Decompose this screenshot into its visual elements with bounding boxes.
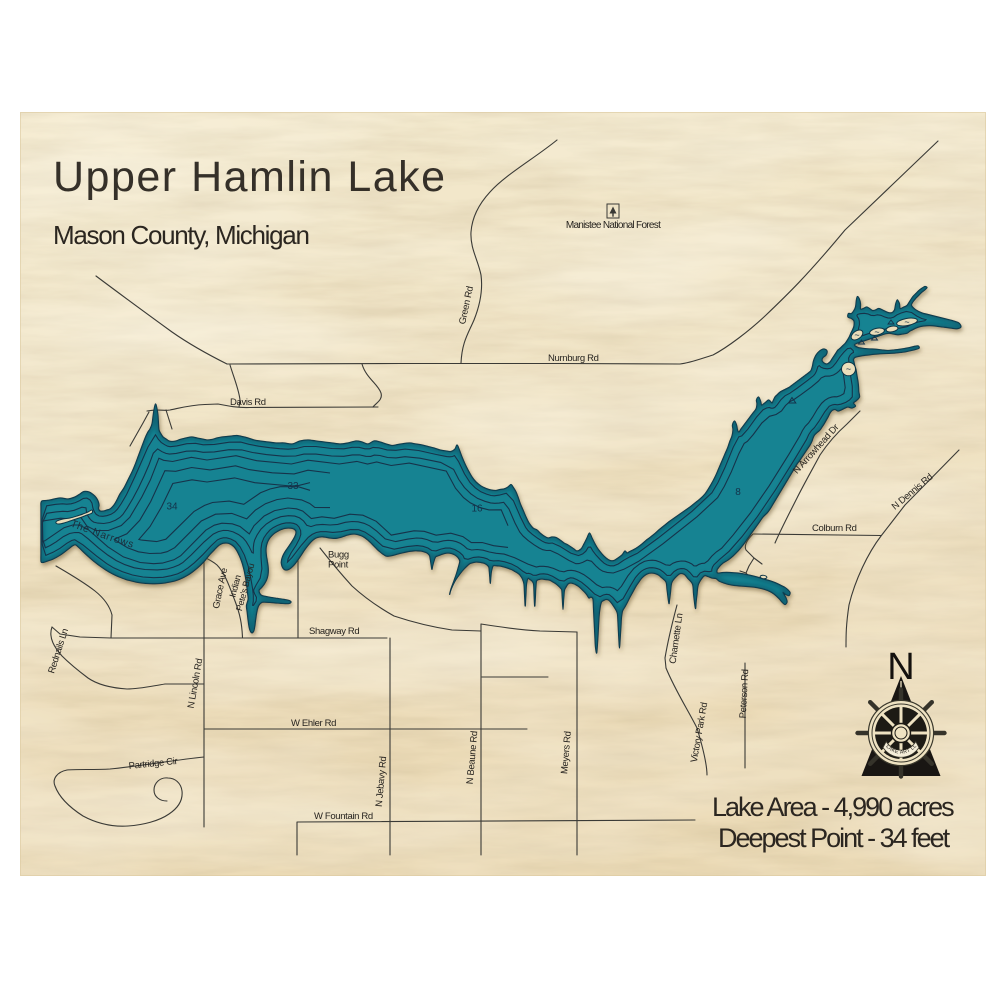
svg-text:16: 16 — [471, 504, 483, 515]
svg-text:33: 33 — [287, 481, 299, 492]
svg-text:8: 8 — [735, 487, 741, 498]
svg-text:Point: Point — [328, 560, 349, 571]
svg-text:Davis Rd: Davis Rd — [230, 397, 266, 408]
svg-text:Mason County, Michigan: Mason County, Michigan — [53, 220, 309, 250]
svg-text:W Ehler Rd: W Ehler Rd — [291, 718, 336, 729]
svg-text:Shagway Rd: Shagway Rd — [309, 626, 359, 637]
svg-text:~: ~ — [904, 317, 909, 327]
svg-text:34: 34 — [166, 502, 178, 513]
svg-text:Lake Area - 4,990 acres: Lake Area - 4,990 acres — [712, 792, 954, 822]
svg-text:Upper Hamlin Lake: Upper Hamlin Lake — [53, 153, 447, 201]
svg-text:Manistee National Forest: Manistee National Forest — [566, 220, 661, 231]
svg-text:Nurnburg Rd: Nurnburg Rd — [548, 353, 599, 364]
svg-text:W Fountain Rd: W Fountain Rd — [314, 811, 373, 822]
svg-text:Colburn Rd: Colburn Rd — [812, 523, 857, 534]
svg-text:~: ~ — [846, 364, 851, 374]
svg-text:~: ~ — [854, 330, 859, 340]
svg-text:Deepest Point - 34 feet: Deepest Point - 34 feet — [718, 823, 951, 853]
svg-text:~: ~ — [874, 327, 879, 337]
